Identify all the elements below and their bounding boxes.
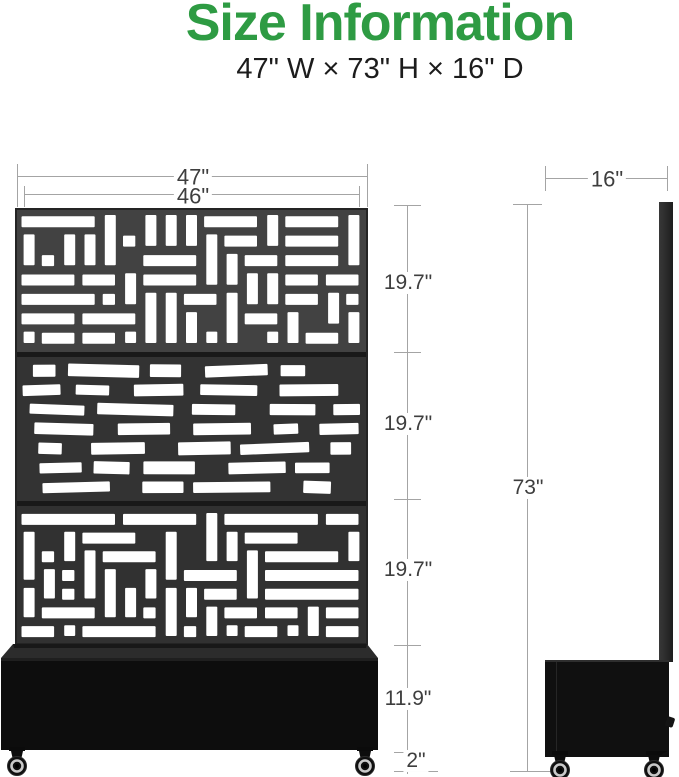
dim-depth-label: 16" bbox=[588, 167, 626, 190]
caster-icon bbox=[4, 747, 30, 777]
panel-cutout bbox=[62, 589, 74, 600]
panel-cutout bbox=[143, 607, 155, 618]
panel-cutout bbox=[143, 275, 196, 286]
panel-cutout bbox=[186, 588, 197, 617]
panel-cutout bbox=[42, 333, 75, 344]
panel-cutout bbox=[308, 607, 319, 636]
caster-icon bbox=[641, 751, 667, 777]
panel-cutout bbox=[326, 514, 359, 525]
panel-cutout bbox=[267, 332, 278, 343]
panel-cutout bbox=[103, 294, 115, 305]
panel-cutout bbox=[200, 384, 257, 396]
panel-cutout bbox=[270, 404, 316, 415]
panel-cutout bbox=[150, 364, 181, 377]
dim-depth-tick-right bbox=[667, 166, 668, 191]
panel-cutout bbox=[224, 514, 318, 525]
panel-cutout bbox=[265, 607, 298, 618]
panel-cutout bbox=[64, 532, 75, 561]
panel-cutout bbox=[228, 461, 286, 474]
panel-cutout bbox=[143, 255, 196, 266]
panel-cutout bbox=[125, 273, 136, 304]
panel-cutout bbox=[186, 215, 197, 246]
caster-wheel-side-right bbox=[641, 751, 667, 777]
panel-cutout bbox=[91, 442, 145, 455]
panel-cutout bbox=[267, 273, 278, 304]
panel-cutout bbox=[186, 312, 197, 343]
panel-cutout bbox=[82, 275, 115, 286]
panel-cutout bbox=[285, 255, 338, 266]
page-title: Size Information bbox=[80, 0, 679, 49]
dim-section-3-label: 19.7" bbox=[381, 559, 435, 581]
panel-cutout bbox=[227, 625, 238, 636]
panel-cutout bbox=[273, 423, 298, 434]
panel-divider bbox=[15, 501, 368, 506]
panel-cutout bbox=[206, 234, 217, 284]
panel-cutout bbox=[245, 255, 278, 266]
panel-cutout bbox=[247, 550, 258, 598]
panel-cutout bbox=[166, 215, 177, 246]
panel-cutout bbox=[97, 403, 173, 417]
panel-cutout bbox=[24, 532, 35, 580]
panel-cutout bbox=[265, 570, 359, 581]
panel-cutout bbox=[285, 275, 318, 286]
size-diagram-page: Size Information 47" W × 73" H × 16" D 4… bbox=[0, 0, 679, 777]
panel-cutout bbox=[227, 532, 238, 561]
dim-planter-height-label: 11.9" bbox=[382, 688, 435, 710]
panel-cutout bbox=[22, 514, 116, 525]
panel-cutout bbox=[33, 365, 56, 377]
caster-wheel-front-right bbox=[352, 747, 378, 777]
panel-cutout bbox=[145, 215, 156, 246]
panel-cutout bbox=[245, 533, 298, 544]
panel-cutout bbox=[118, 423, 170, 435]
panel-cutout bbox=[24, 588, 35, 617]
panel-cutout bbox=[166, 532, 177, 580]
panel-cutout bbox=[288, 312, 299, 343]
planter-box-front bbox=[0, 643, 380, 753]
panel-cutout bbox=[24, 332, 35, 343]
panel-cutout bbox=[224, 607, 257, 618]
panel-cutout bbox=[82, 626, 155, 637]
panel-cutout bbox=[76, 385, 110, 396]
panel-cutout bbox=[24, 234, 35, 265]
panel-cutout bbox=[184, 626, 196, 637]
dimensions-subtitle: 47" W × 73" H × 16" D bbox=[80, 54, 679, 84]
panel-cutout bbox=[224, 236, 257, 247]
panel-cutout bbox=[93, 461, 129, 474]
panel-cutout bbox=[145, 569, 156, 598]
dim-tick-section-1-2 bbox=[394, 352, 421, 353]
planter-rim-back-shadow bbox=[13, 644, 367, 648]
panel-cutout bbox=[319, 423, 358, 435]
panel-cutout bbox=[330, 442, 351, 455]
dim-caster-height-label: 2" bbox=[403, 750, 428, 772]
panel-cutout bbox=[206, 332, 217, 343]
panel-cutout bbox=[227, 254, 238, 285]
panel-cutout bbox=[204, 589, 237, 600]
panel-cutout bbox=[247, 273, 258, 304]
panel-cutout bbox=[42, 551, 54, 562]
panel-cutout bbox=[328, 293, 339, 324]
panel-cutout bbox=[85, 550, 96, 598]
panel-cutout bbox=[22, 216, 95, 227]
panel-cutout bbox=[103, 551, 156, 562]
panel-cutout bbox=[348, 312, 359, 343]
panel-cutout bbox=[193, 423, 251, 436]
dim-total-height-label: 73" bbox=[510, 477, 547, 499]
panel-cutout bbox=[142, 481, 183, 493]
dim-width-outer-tick-right bbox=[367, 164, 368, 207]
panel-cutout bbox=[348, 215, 359, 265]
panel-cutout bbox=[346, 294, 358, 305]
panel-cutout bbox=[125, 332, 136, 343]
panel-cutout bbox=[85, 234, 96, 265]
panel-cutout bbox=[206, 513, 217, 561]
dim-width-inner-label: 46" bbox=[174, 184, 212, 207]
panel-cutout bbox=[34, 422, 93, 435]
panel-cutout bbox=[64, 234, 75, 265]
panel-cutout bbox=[105, 569, 116, 617]
panel-cutout bbox=[295, 463, 330, 474]
panel-cutout bbox=[42, 607, 95, 618]
panel-cutout bbox=[82, 333, 115, 344]
caster-lock-knob bbox=[665, 716, 676, 728]
panel-cutout bbox=[166, 293, 177, 343]
panel-cutout bbox=[82, 313, 135, 324]
panel-cutout bbox=[265, 589, 359, 600]
panel-cutout bbox=[193, 482, 270, 493]
planter-box-side bbox=[545, 660, 669, 757]
dim-tick-planter-top bbox=[394, 645, 421, 646]
panel-cutout bbox=[326, 607, 359, 618]
dim-section-1-label: 19.7" bbox=[381, 272, 435, 294]
panel-cutout bbox=[206, 607, 217, 636]
panel-cutout bbox=[82, 533, 135, 544]
caster-icon bbox=[547, 751, 573, 777]
panel-cutout bbox=[22, 384, 60, 396]
panel-cutout bbox=[145, 293, 156, 343]
panel-cutout bbox=[285, 236, 338, 247]
dim-tick-section-2-3 bbox=[394, 499, 421, 500]
panel-cutout bbox=[306, 333, 339, 344]
dim-depth-tick-left bbox=[545, 166, 546, 191]
panel-cutout bbox=[288, 625, 299, 636]
panel-cutout bbox=[265, 551, 338, 562]
planter-front-face bbox=[1, 658, 378, 750]
panel-cutout bbox=[192, 404, 236, 415]
panel-cutout bbox=[184, 294, 217, 305]
panel-cutout bbox=[125, 588, 136, 617]
privacy-screen-front bbox=[15, 208, 368, 645]
caster-icon bbox=[352, 747, 378, 777]
dim-width-inner-tick-right bbox=[359, 186, 360, 207]
dim-tick-panel-top bbox=[394, 205, 421, 206]
panel-cutout bbox=[333, 404, 360, 415]
panel-cutout bbox=[123, 236, 135, 247]
panel-cutout bbox=[22, 294, 95, 305]
dim-width-outer-tick-left bbox=[17, 164, 18, 207]
panel-cutout bbox=[326, 626, 359, 637]
panel-cutout bbox=[279, 384, 338, 396]
dim-width-inner-tick-left bbox=[24, 186, 25, 207]
panel-cutout bbox=[326, 275, 359, 286]
panel-cutout bbox=[245, 626, 278, 637]
planter-front-lip bbox=[1, 658, 378, 661]
caster-wheel-side-left bbox=[547, 751, 573, 777]
panel-cutout bbox=[105, 215, 116, 265]
panel-cutout bbox=[204, 216, 257, 227]
panel-cutout bbox=[29, 404, 84, 416]
caster-wheel-front-left bbox=[4, 747, 30, 777]
panel-cutout bbox=[303, 481, 331, 494]
panel-cutout bbox=[348, 532, 359, 561]
dim-total-height-tick-top bbox=[513, 204, 542, 205]
panel-cutout bbox=[22, 626, 55, 637]
panel-cutout bbox=[68, 364, 139, 378]
panel-cutout bbox=[285, 294, 318, 305]
panel-cutout bbox=[285, 216, 338, 227]
panel-cutout bbox=[184, 570, 237, 581]
panel-cutout bbox=[178, 441, 231, 455]
panel-divider bbox=[15, 352, 368, 357]
dim-section-2-label: 19.7" bbox=[381, 413, 435, 435]
panel-cutout bbox=[44, 569, 55, 598]
panel-cutout bbox=[42, 255, 54, 266]
panel-cutout bbox=[166, 588, 177, 636]
panel-cutout bbox=[39, 462, 81, 473]
planter-side-seam bbox=[556, 662, 557, 757]
panel-cutout bbox=[227, 293, 238, 343]
panel-cutout bbox=[38, 442, 62, 454]
panel-cutout bbox=[22, 275, 75, 286]
panel-cutout bbox=[22, 313, 75, 324]
panel-cutout bbox=[123, 514, 196, 525]
panel-cutout bbox=[267, 215, 278, 246]
panel-cutout bbox=[134, 384, 184, 397]
panel-cutout bbox=[64, 625, 75, 636]
privacy-screen-side-profile bbox=[659, 202, 673, 662]
panel-cutout bbox=[245, 313, 278, 324]
panel-cutout bbox=[42, 481, 110, 493]
panel-cutout bbox=[62, 570, 74, 581]
panel-cutout bbox=[143, 461, 195, 474]
panel-cutout bbox=[281, 365, 306, 376]
